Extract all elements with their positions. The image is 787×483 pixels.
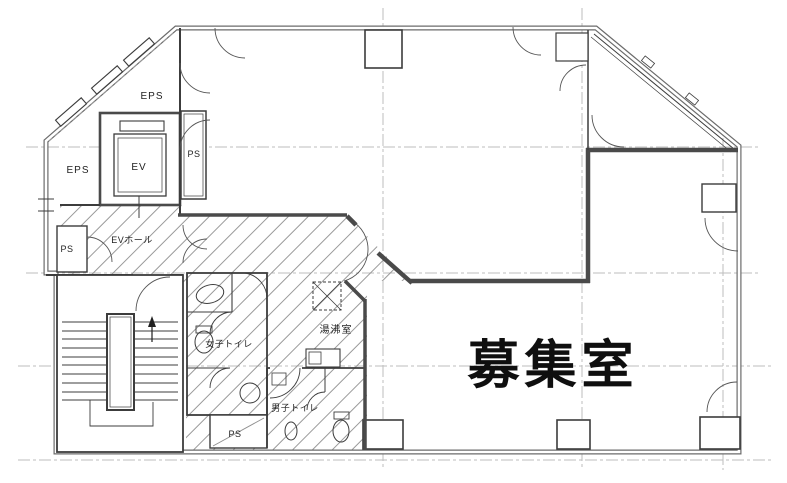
label-vacancy-room: 募集室 bbox=[466, 337, 638, 395]
pipe-shaft-east bbox=[702, 184, 736, 212]
label-eps-top: EPS bbox=[140, 91, 163, 102]
label-ev: EV bbox=[131, 162, 146, 173]
label-womens-toilet: 女子トイレ bbox=[205, 338, 253, 349]
label-eps-left: EPS bbox=[66, 165, 89, 176]
label-mens-toilet: 男子トイレ bbox=[271, 403, 319, 413]
bottom-pillar-1 bbox=[363, 420, 403, 449]
top-pillar bbox=[365, 30, 402, 68]
closet-box bbox=[556, 33, 588, 61]
label-ev-hall: EVホール bbox=[111, 235, 153, 245]
floor-plan: EPS EPS EV PS EVホール PS 女子トイレ 湯沸室 男子トイレ P… bbox=[0, 0, 787, 483]
stair-landing bbox=[107, 314, 134, 410]
label-ps-shaft: PS bbox=[187, 149, 200, 159]
floor-plan-canvas: EPS EPS EV PS EVホール PS 女子トイレ 湯沸室 男子トイレ P… bbox=[0, 0, 787, 483]
label-ps-left: PS bbox=[60, 244, 73, 254]
label-kitchenette: 湯沸室 bbox=[320, 323, 353, 336]
label-ps-bottom: PS bbox=[228, 429, 241, 439]
staircase bbox=[57, 275, 183, 452]
bottom-pillar-3 bbox=[700, 417, 740, 449]
bottom-pillar-2 bbox=[557, 420, 590, 449]
elevator-counterweight bbox=[120, 121, 164, 131]
